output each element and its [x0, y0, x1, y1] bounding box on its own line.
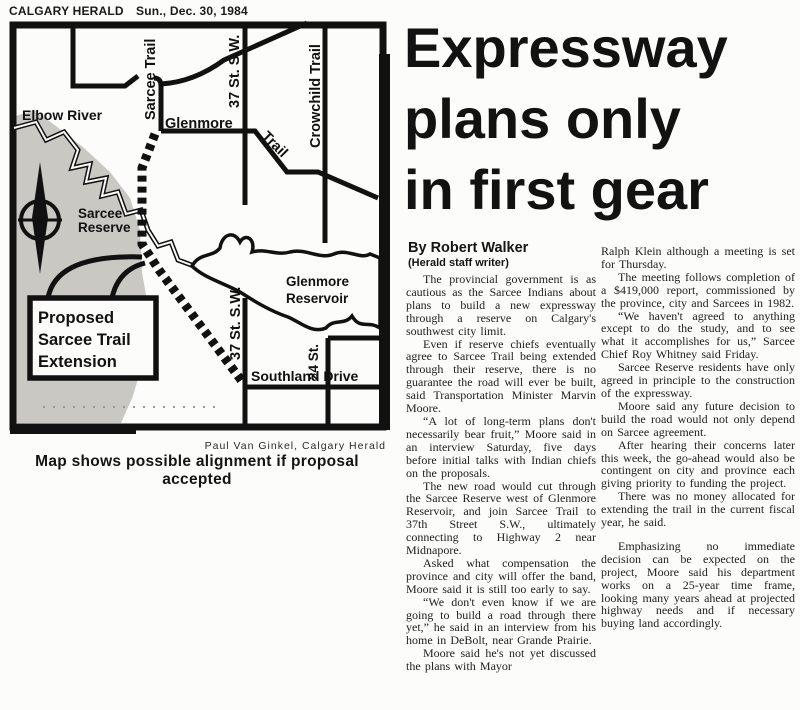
- article-column-1: The provincial government is as cautious…: [406, 273, 596, 673]
- article-paragraph: The meeting follows completion of a $419…: [601, 271, 795, 310]
- article-paragraph: There was no money allocated for extendi…: [601, 490, 795, 529]
- compass-n-label: N: [36, 214, 45, 228]
- map-label-elbow-river: Elbow River: [22, 107, 103, 123]
- article-paragraph: Ralph Klein although a meeting is set fo…: [601, 245, 795, 271]
- article-column-2: Ralph Klein although a meeting is set fo…: [601, 245, 795, 630]
- map-graphic: N Proposed Sarcee Trail Extension Sarcee…: [8, 20, 394, 438]
- map-label-crowchild-trail: Crowchild Trail: [308, 44, 324, 148]
- article-paragraph: Sarcee Reserve residents have only agree…: [601, 361, 795, 400]
- map-label-37st-north: 37 St. S.W.: [227, 35, 243, 108]
- article-paragraph: After hearing their concerns later this …: [601, 439, 795, 491]
- callout-line3: Extension: [38, 353, 117, 371]
- byline-author: By Robert Walker: [408, 240, 598, 256]
- article-paragraph: Moore said any future decision to build …: [601, 400, 795, 439]
- article-paragraph: “A lot of long-term plans don't necessar…: [406, 415, 596, 480]
- article-paragraph: Asked what compensation the province and…: [406, 557, 596, 596]
- article-paragraph: The provincial government is as cautious…: [406, 273, 596, 338]
- map-label-37st-south: 37 St. S.W.: [228, 287, 244, 360]
- map-label-southland: Southland Drive: [251, 368, 359, 384]
- headline-line-1: Expressway: [404, 12, 798, 83]
- article-headline: Expressway plans only in first gear: [404, 12, 798, 225]
- callout-line2: Sarcee Trail: [38, 331, 131, 349]
- article-paragraph: Moore said he's not yet discussed the pl…: [406, 647, 596, 673]
- newspaper-page: CALGARY HERALD Sun., Dec. 30, 1984: [0, 0, 800, 710]
- publication-name: CALGARY HERALD: [9, 4, 124, 18]
- map-label-sarcee-reserve-1: Sarcee: [78, 206, 123, 221]
- photo-credit: Paul Van Ginkel, Calgary Herald: [8, 440, 386, 452]
- map-frame-right-bar: [379, 54, 390, 430]
- map-caption: Map shows possible alignment if proposal…: [6, 453, 388, 489]
- byline-block: By Robert Walker (Herald staff writer): [408, 240, 598, 269]
- article-paragraph: The new road would cut through the Sarce…: [406, 480, 596, 557]
- article-paragraph: “We haven't agreed to anything except to…: [601, 310, 795, 362]
- headline-line-3: in first gear: [404, 154, 798, 225]
- callout-line1: Proposed: [38, 309, 114, 327]
- map-label-reservoir-1: Glenmore: [286, 274, 350, 289]
- headline-line-2: plans only: [404, 83, 798, 154]
- map-label-sarcee-reserve-2: Reserve: [78, 220, 131, 235]
- article-paragraph: “We don't even know if we are going to b…: [406, 596, 596, 648]
- article-paragraph: Even if reserve chiefs eventually agree …: [406, 338, 596, 415]
- map-label-glenmore-road: Glenmore: [165, 116, 233, 132]
- article-paragraph: Emphasizing no immediate decision can be…: [601, 540, 795, 630]
- byline-title: (Herald staff writer): [408, 257, 598, 269]
- map-label-reservoir-2: Reservoir: [286, 291, 349, 306]
- road-sarcee-jog: [73, 23, 138, 86]
- map-frame-bottom-notch: [10, 425, 136, 434]
- map-figure: N Proposed Sarcee Trail Extension Sarcee…: [8, 20, 394, 438]
- publication-date: Sun., Dec. 30, 1984: [136, 4, 248, 18]
- map-label-sarcee-trail: Sarcee Trail: [143, 39, 159, 120]
